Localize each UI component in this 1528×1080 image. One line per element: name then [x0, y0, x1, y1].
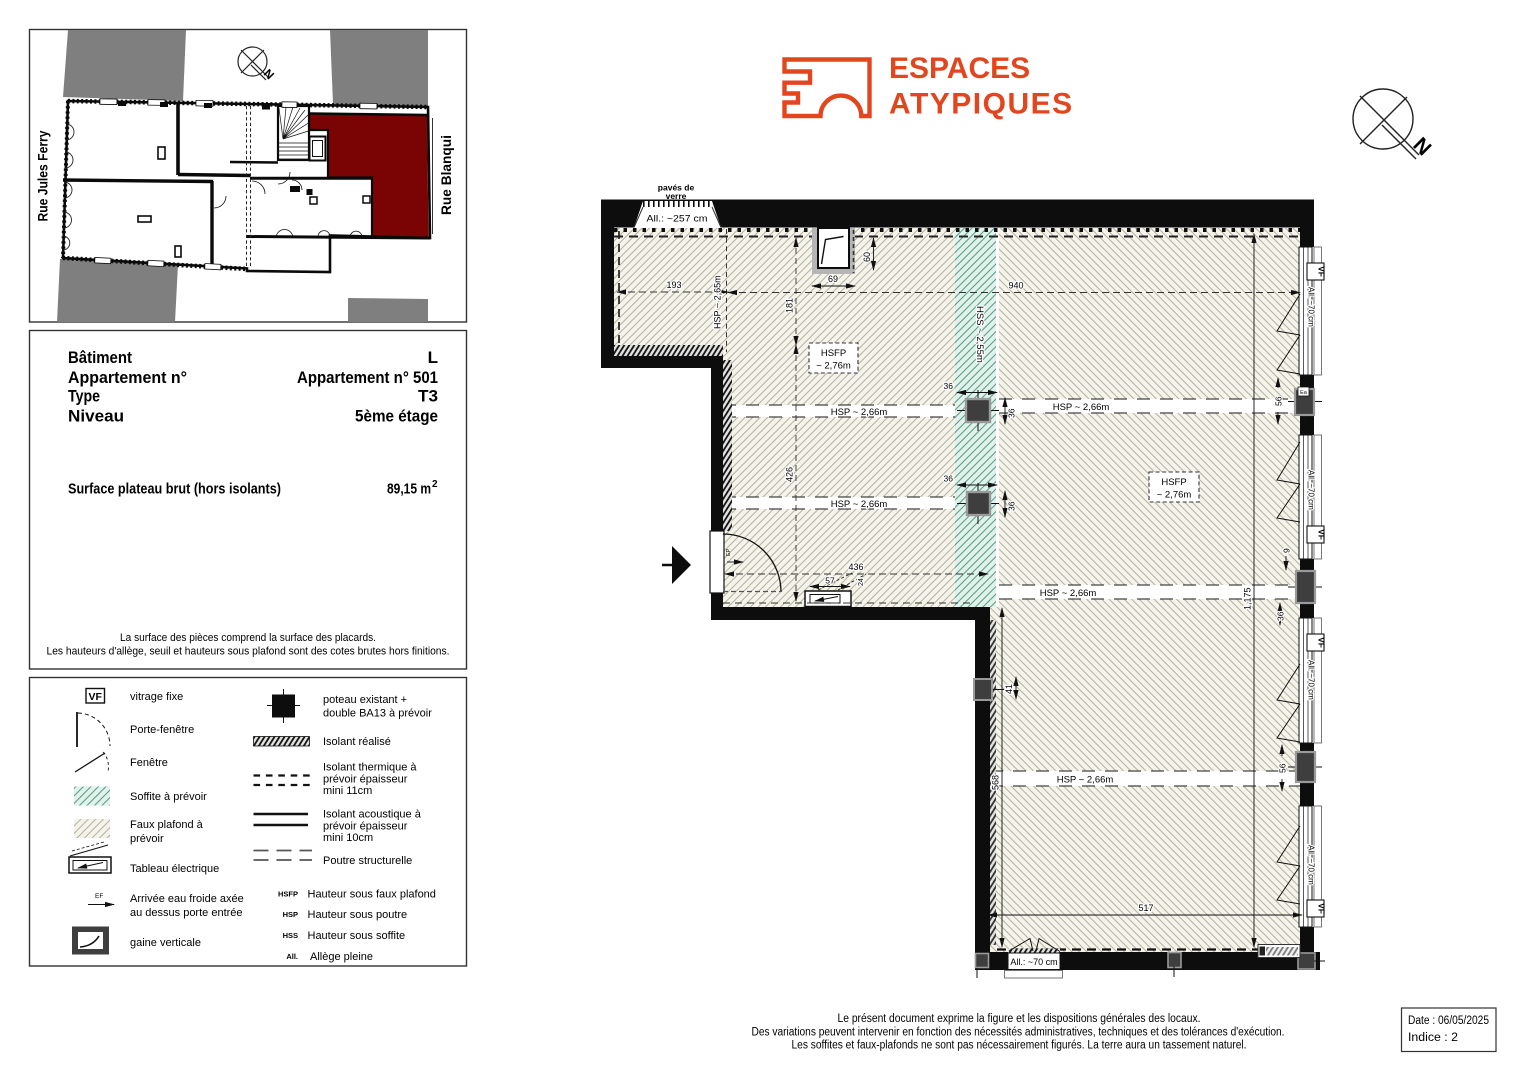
svg-text:ATYPIQUES: ATYPIQUES [889, 88, 1074, 121]
svg-text:HSS: HSS [283, 931, 298, 940]
svg-text:T3: T3 [418, 387, 438, 406]
svg-text:193: 193 [666, 280, 681, 290]
svg-text:ESPACES: ESPACES [889, 52, 1030, 85]
svg-text:HSP ~ 2,65m: HSP ~ 2,65m [713, 275, 723, 329]
svg-text:EF: EF [95, 893, 103, 900]
svg-text:au dessus porte entrée: au dessus porte entrée [130, 907, 243, 919]
svg-text:Faux plafond à: Faux plafond à [130, 819, 204, 831]
svg-text:L: L [428, 348, 438, 367]
svg-text:VF: VF [88, 691, 102, 703]
svg-text:HSP ~ 2,66m: HSP ~ 2,66m [1057, 775, 1114, 786]
svg-text:All.: All. [286, 952, 298, 961]
svg-text:568: 568 [991, 775, 1001, 790]
svg-text:60: 60 [862, 252, 872, 262]
svg-text:89,15 m: 89,15 m [387, 481, 431, 498]
svg-text:Rue Blanqui: Rue Blanqui [439, 135, 454, 215]
svg-text:VF: VF [1317, 266, 1327, 277]
svg-text:double BA13 à prévoir: double BA13 à prévoir [323, 708, 432, 720]
svg-text:Hauteur sous poutre: Hauteur sous poutre [308, 909, 408, 921]
svg-text:HSP ~ 2,66m: HSP ~ 2,66m [1040, 588, 1097, 599]
svg-text:Rue Jules Ferry: Rue Jules Ferry [36, 130, 51, 221]
svg-text:All. ~70 cm: All. ~70 cm [1307, 287, 1316, 327]
svg-text:940: 940 [1008, 281, 1023, 291]
svg-text:verre: verre [666, 191, 687, 201]
svg-text:poteau existant +: poteau existant + [323, 694, 407, 706]
svg-text:36: 36 [944, 474, 954, 484]
svg-text:517: 517 [1138, 903, 1153, 913]
svg-text:Allège pleine: Allège pleine [310, 951, 373, 963]
svg-text:Date : 06/05/2025: Date : 06/05/2025 [1408, 1015, 1489, 1027]
svg-text:HSP ~ 2,66m: HSP ~ 2,66m [831, 499, 888, 510]
svg-text:Des variations peuvent interve: Des variations peuvent intervenir en fon… [752, 1027, 1285, 1039]
svg-text:5ème étage: 5ème étage [355, 407, 438, 426]
svg-text:gaine verticale: gaine verticale [130, 937, 201, 949]
svg-text:All.: ~257 cm: All.: ~257 cm [647, 214, 708, 225]
svg-text:HSFP: HSFP [821, 348, 846, 359]
svg-text:181: 181 [785, 298, 795, 313]
svg-text:La surface des pièces comprend: La surface des pièces comprend la surfac… [120, 632, 376, 644]
svg-text:HSP ~ 2,66m: HSP ~ 2,66m [831, 407, 888, 418]
svg-text:1,175: 1,175 [1243, 587, 1253, 610]
svg-text:Type: Type [68, 387, 100, 406]
svg-text:57: 57 [825, 576, 835, 586]
svg-text:VF: VF [1317, 529, 1327, 540]
svg-text:mini 10cm: mini 10cm [323, 832, 373, 844]
svg-text:~ 2,76m: ~ 2,76m [1157, 490, 1192, 501]
svg-text:Arrivée eau froide axée: Arrivée eau froide axée [130, 893, 244, 905]
svg-text:Soffite à prévoir: Soffite à prévoir [130, 791, 207, 803]
svg-text:Hauteur sous faux plafond: Hauteur sous faux plafond [308, 889, 436, 901]
svg-text:24: 24 [858, 578, 865, 586]
svg-text:Hauteur sous soffite: Hauteur sous soffite [308, 930, 406, 942]
svg-text:56: 56 [1274, 396, 1284, 406]
svg-text:All.: ~70 cm: All.: ~70 cm [1010, 957, 1057, 967]
svg-text:HSP: HSP [283, 910, 298, 919]
svg-text:Appartement n°: Appartement n° [68, 368, 187, 387]
svg-text:2: 2 [432, 479, 438, 490]
svg-text:36: 36 [1007, 501, 1017, 511]
svg-text:Ea: Ea [1300, 390, 1308, 396]
svg-text:Surface plateau brut (hors iso: Surface plateau brut (hors isolants) [68, 481, 281, 498]
svg-text:Appartement n° 501: Appartement n° 501 [297, 368, 438, 387]
svg-text:Isolant réalisé: Isolant réalisé [323, 736, 391, 748]
svg-text:Les hauteurs d'allège, seuil e: Les hauteurs d'allège, seuil et hauteurs… [47, 646, 450, 658]
svg-text:mini 11cm: mini 11cm [323, 785, 372, 797]
svg-text:Les soffites et faux-plafonds: Les soffites et faux-plafonds ne sont pa… [792, 1040, 1247, 1052]
svg-text:Isolant acoustique à: Isolant acoustique à [323, 809, 422, 821]
svg-text:VF: VF [1317, 637, 1327, 648]
svg-text:~ 2,76m: ~ 2,76m [816, 361, 851, 372]
svg-text:Indice : 2: Indice : 2 [1408, 1032, 1458, 1044]
svg-text:prévoir épaisseur: prévoir épaisseur [323, 821, 408, 833]
svg-text:Porte-fenêtre: Porte-fenêtre [130, 724, 194, 736]
svg-text:Fenêtre: Fenêtre [130, 757, 168, 769]
svg-text:Le présent document exprime la: Le présent document exprime la figure et… [838, 1013, 1201, 1025]
svg-text:69: 69 [828, 274, 838, 284]
svg-text:All. ~70 cm: All. ~70 cm [1307, 660, 1316, 700]
svg-text:41: 41 [1004, 684, 1014, 694]
svg-text:436: 436 [848, 562, 863, 572]
svg-text:36: 36 [944, 381, 954, 391]
svg-text:9: 9 [1282, 548, 1292, 553]
svg-text:All. ~70 cm: All. ~70 cm [1307, 470, 1316, 510]
svg-text:vitrage fixe: vitrage fixe [130, 691, 183, 703]
svg-text:prévoir: prévoir [130, 833, 164, 845]
svg-text:prévoir épaisseur: prévoir épaisseur [323, 774, 408, 786]
svg-text:426: 426 [785, 467, 795, 482]
svg-text:Niveau: Niveau [68, 407, 124, 426]
svg-text:Bâtiment: Bâtiment [68, 348, 132, 367]
svg-text:EP: EP [726, 548, 732, 556]
svg-text:All. ~70 cm: All. ~70 cm [1307, 845, 1316, 885]
svg-text:HSFP: HSFP [1161, 477, 1186, 488]
svg-text:HSP ~ 2,66m: HSP ~ 2,66m [1053, 402, 1110, 413]
svg-text:Tableau électrique: Tableau électrique [130, 863, 219, 875]
svg-text:56: 56 [1278, 763, 1288, 773]
svg-text:36: 36 [1276, 611, 1286, 621]
svg-text:VF: VF [1317, 903, 1327, 914]
svg-text:Isolant thermique à: Isolant thermique à [323, 762, 417, 774]
svg-text:36: 36 [1007, 408, 1017, 418]
svg-text:HSFP: HSFP [278, 890, 298, 899]
svg-text:HSS ~ 2,55m: HSS ~ 2,55m [974, 306, 985, 363]
svg-text:Poutre structurelle: Poutre structurelle [323, 855, 412, 867]
